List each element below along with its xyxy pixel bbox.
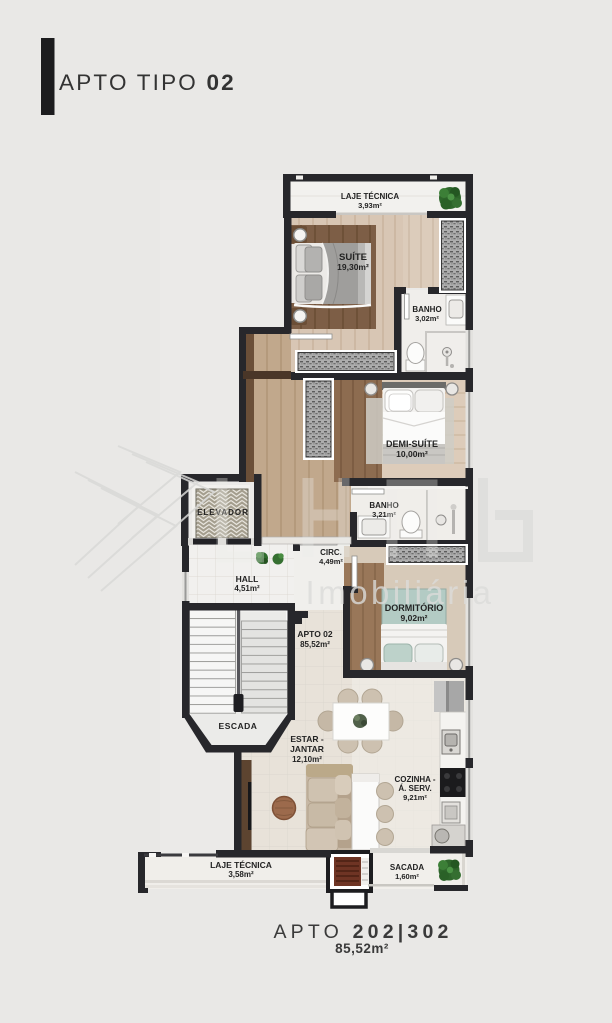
svg-text:APTO TIPO 02: APTO TIPO 02: [59, 70, 236, 95]
svg-text:4,51m²: 4,51m²: [234, 584, 260, 593]
svg-text:COZINHA -: COZINHA -: [394, 775, 435, 784]
svg-text:12,10m²: 12,10m²: [292, 755, 322, 764]
svg-text:9,02m²: 9,02m²: [401, 613, 428, 623]
svg-text:SACADA: SACADA: [390, 863, 424, 872]
svg-text:3,58m²: 3,58m²: [228, 870, 254, 879]
svg-text:85,52m²: 85,52m²: [335, 941, 389, 956]
svg-text:9,21m²: 9,21m²: [403, 793, 427, 802]
svg-text:ESTAR -: ESTAR -: [290, 734, 324, 744]
svg-text:LAJE TÉCNICA: LAJE TÉCNICA: [341, 192, 399, 201]
svg-text:4,49m²: 4,49m²: [319, 557, 343, 566]
svg-text:Á. SERV.: Á. SERV.: [398, 784, 431, 793]
svg-text:3,93m²: 3,93m²: [358, 201, 382, 210]
svg-text:APTO 202|302: APTO 202|302: [273, 921, 452, 943]
svg-text:HALL: HALL: [236, 574, 259, 584]
svg-text:LAJE TÉCNICA: LAJE TÉCNICA: [210, 860, 272, 870]
svg-text:ESCADA: ESCADA: [219, 721, 258, 731]
svg-text:1,60m²: 1,60m²: [395, 872, 419, 881]
svg-text:3,02m²: 3,02m²: [415, 314, 439, 323]
svg-text:BANHO: BANHO: [412, 305, 441, 314]
svg-text:JANTAR: JANTAR: [290, 744, 324, 754]
svg-text:Imobiliária: Imobiliária: [306, 574, 495, 611]
svg-text:APTO 02: APTO 02: [297, 629, 333, 639]
svg-text:19,30m²: 19,30m²: [337, 262, 369, 272]
svg-text:85,52m²: 85,52m²: [300, 640, 330, 649]
svg-text:10,00m²: 10,00m²: [396, 449, 428, 459]
svg-text:DEMI-SUÍTE: DEMI-SUÍTE: [386, 439, 438, 449]
